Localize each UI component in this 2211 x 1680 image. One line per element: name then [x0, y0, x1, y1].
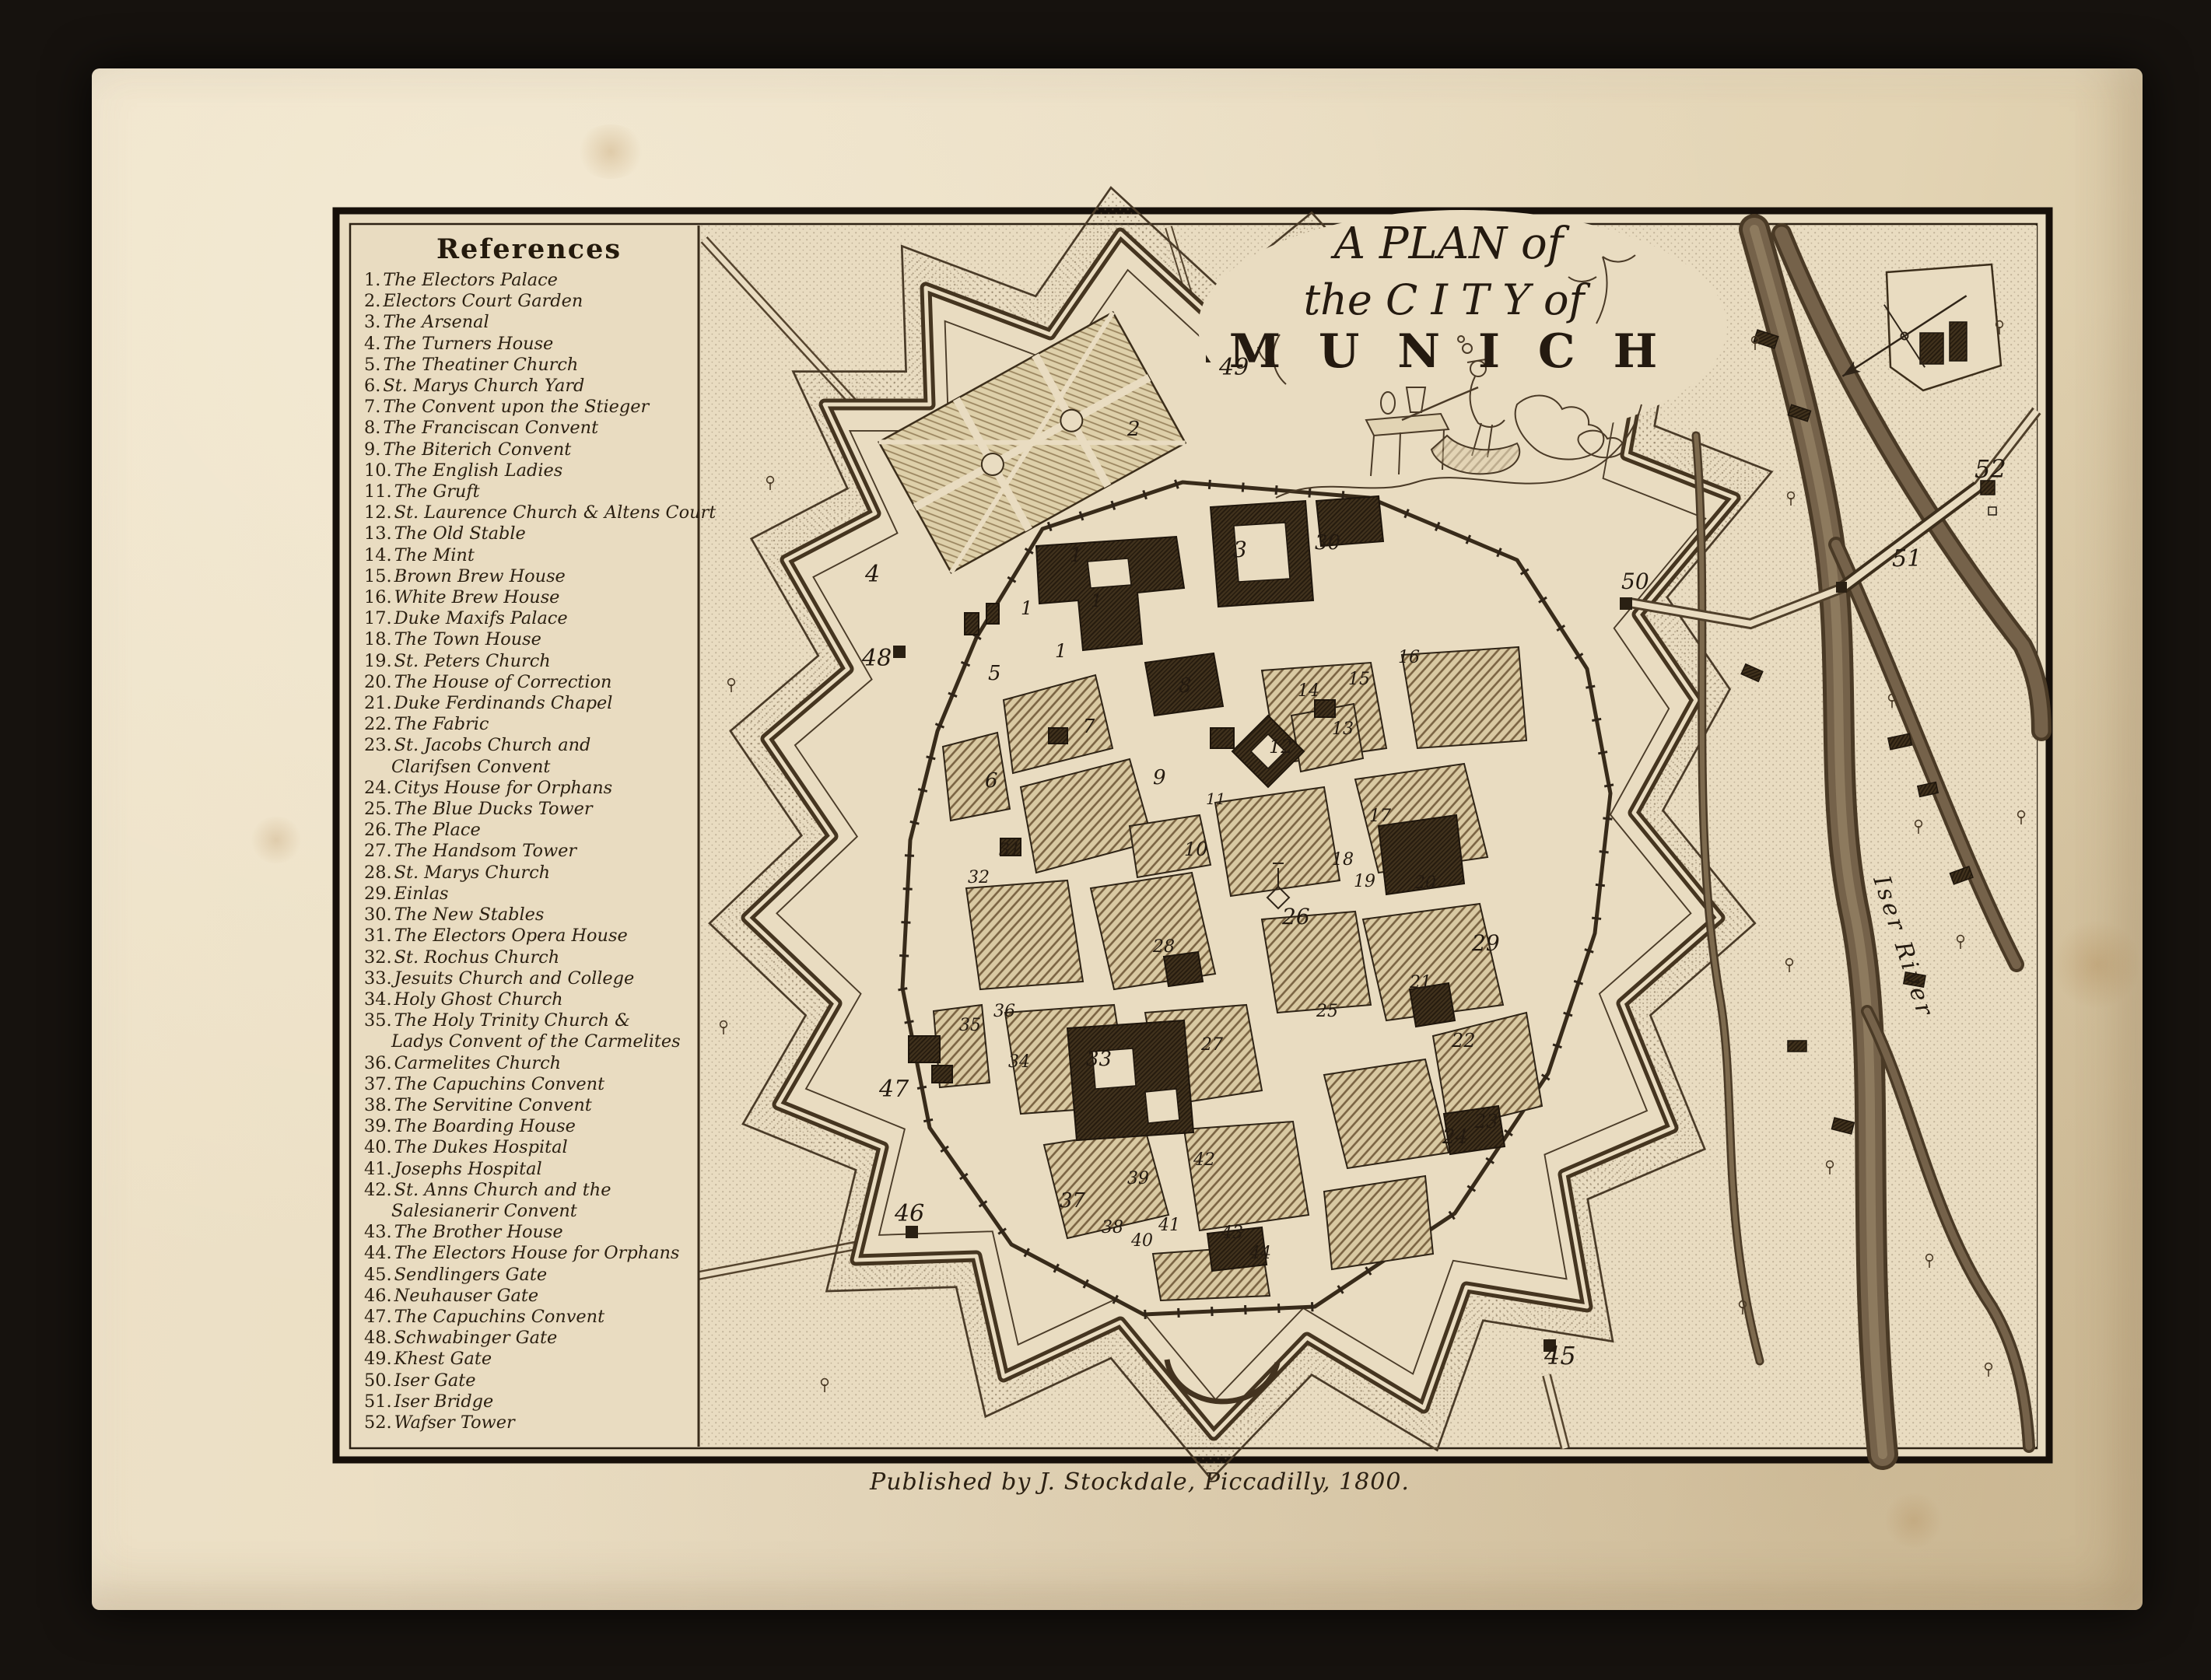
map-label: 39: [1127, 1169, 1149, 1188]
map-label: 20: [1414, 873, 1436, 893]
map-label: 1: [1055, 640, 1067, 662]
map-label: 29: [1471, 930, 1500, 956]
map-label: 42: [1193, 1150, 1215, 1170]
map-label: 52: [1974, 454, 2006, 484]
map-label: 16: [1398, 648, 1420, 667]
reference-item: 25.The Blue Ducks Tower: [364, 799, 694, 820]
walled-enclosure: [1887, 264, 2001, 390]
reference-item: 45.Sendlingers Gate: [364, 1265, 694, 1286]
map-label: 43: [1221, 1223, 1243, 1243]
map-label: 18: [1332, 850, 1354, 870]
map-label: 28: [1152, 937, 1175, 957]
reference-item: 22.The Fabric: [364, 714, 694, 735]
reference-item: 5.The Theatiner Church: [364, 355, 694, 376]
map-label: 50: [1621, 569, 1649, 594]
title-line-2: the C I T Y of: [1303, 275, 1590, 324]
map-label: 1: [1021, 597, 1032, 619]
reference-item: Salesianerir Convent: [364, 1201, 694, 1222]
map-label: 12: [1269, 736, 1293, 758]
map-label: 3: [1233, 537, 1247, 562]
map-label: 46: [894, 1200, 924, 1227]
map-label: 19: [1354, 872, 1375, 891]
reference-item: 43.The Brother House: [364, 1222, 694, 1243]
map-label: 48: [861, 645, 892, 672]
reference-item: 41.Josephs Hospital: [364, 1159, 694, 1180]
reference-item: 12.St. Laurence Church & Altens Court: [364, 502, 694, 523]
map-label: 27: [1200, 1035, 1223, 1055]
reference-item: 4.The Turners House: [364, 334, 694, 355]
reference-item: 36.Carmelites Church: [364, 1053, 694, 1074]
reference-item: 16.White Brew House: [364, 587, 694, 608]
reference-item: 28.St. Marys Church: [364, 863, 694, 884]
map-label: 1: [1070, 544, 1083, 567]
reference-item: 19.St. Peters Church: [364, 651, 694, 672]
reference-item: 6.St. Marys Church Yard: [364, 376, 694, 397]
reference-item: 47.The Capuchins Convent: [364, 1307, 694, 1328]
references-list: 1.The Electors Palace2.Electors Court Ga…: [364, 270, 694, 1433]
map-label: 13: [1332, 719, 1354, 739]
map-label: 14: [1298, 681, 1319, 701]
map-label: 32: [968, 868, 990, 887]
reference-item: 34.Holy Ghost Church: [364, 989, 694, 1010]
map-label: 51: [1892, 545, 1922, 572]
map-label: 38: [1102, 1218, 1123, 1237]
title-line-1: A PLAN of: [1330, 219, 1571, 269]
reference-item: 24.Citys House for Orphans: [364, 778, 694, 799]
reference-item: 14.The Mint: [364, 545, 694, 566]
reference-item: 37.The Capuchins Convent: [364, 1074, 694, 1095]
reference-item: 23.St. Jacobs Church and: [364, 735, 694, 756]
map-label: 44: [1249, 1244, 1271, 1263]
title-line-3: M U N I C H: [1229, 324, 1669, 379]
map-label: 8: [1179, 674, 1192, 698]
reference-item: 26.The Place: [364, 820, 694, 841]
map-label: 5: [988, 662, 1001, 685]
reference-item: 46.Neuhauser Gate: [364, 1286, 694, 1307]
reference-item: 17.Duke Maxifs Palace: [364, 608, 694, 629]
map-label: 21: [1409, 973, 1431, 992]
references-heading: References: [364, 233, 694, 265]
reference-item: 15.Brown Brew House: [364, 566, 694, 587]
map-label: 2: [1127, 418, 1141, 441]
map-label: 31: [999, 841, 1021, 860]
reference-item: 13.The Old Stable: [364, 523, 694, 544]
map-engraving: A PLAN of the C I T Y of M U N I C H 492…: [0, 0, 2211, 1680]
publisher-imprint: Published by J. Stockdale, Piccadilly, 1…: [844, 1468, 1435, 1496]
map-label: 40: [1130, 1231, 1153, 1251]
map-label: 35: [959, 1016, 981, 1035]
map-label: 9: [1153, 766, 1166, 789]
st-marys-church-block: [1164, 952, 1203, 986]
reference-item: 21.Duke Ferdinands Chapel: [364, 693, 694, 714]
reference-item: 32.St. Rochus Church: [364, 947, 694, 968]
capuchins-convent-47: [909, 1036, 940, 1062]
map-label: 4: [864, 561, 880, 588]
reference-item: 48.Schwabinger Gate: [364, 1328, 694, 1349]
map-label: 6: [985, 769, 998, 793]
map-label: 45: [1543, 1341, 1576, 1370]
reference-item: 20.The House of Correction: [364, 672, 694, 693]
map-label: 23: [1473, 1111, 1498, 1132]
map-label: 1: [1091, 590, 1102, 611]
map-label: 7: [1083, 716, 1095, 737]
reference-item: 2.Electors Court Garden: [364, 291, 694, 312]
reference-item: 9.The Biterich Convent: [364, 439, 694, 460]
reference-item: 3.The Arsenal: [364, 312, 694, 333]
reference-item: 7.The Convent upon the Stieger: [364, 397, 694, 418]
reference-item: 8.The Franciscan Convent: [364, 418, 694, 439]
map-area: A PLAN of the C I T Y of M U N I C H 492…: [699, 187, 2041, 1479]
map-label: 36: [993, 1002, 1015, 1021]
reference-item: Ladys Convent of the Carmelites: [364, 1031, 694, 1052]
references-panel: References 1.The Electors Palace2.Electo…: [350, 224, 697, 1448]
reference-item: 42.St. Anns Church and the: [364, 1180, 694, 1201]
reference-item: 27.The Handsom Tower: [364, 841, 694, 862]
map-label: 24: [1442, 1125, 1468, 1149]
reference-item: 40.The Dukes Hospital: [364, 1137, 694, 1158]
reference-item: 1.The Electors Palace: [364, 270, 694, 291]
reference-item: 38.The Servitine Convent: [364, 1095, 694, 1116]
reference-item: 52.Wafser Tower: [364, 1412, 694, 1433]
map-label: 15: [1348, 670, 1370, 689]
reference-item: 49.Khest Gate: [364, 1349, 694, 1370]
map-label: 47: [878, 1076, 909, 1103]
map-label: 41: [1158, 1216, 1180, 1235]
reference-item: 31.The Electors Opera House: [364, 926, 694, 947]
map-label: 17: [1369, 807, 1391, 826]
reference-item: 50.Iser Gate: [364, 1370, 694, 1391]
scanned-map-page: { "artwork": { "title": { "line1": "A PL…: [0, 0, 2211, 1680]
map-label: 49: [1218, 354, 1249, 381]
map-label: 10: [1184, 838, 1208, 860]
map-label: 33: [1086, 1048, 1112, 1071]
map-label: 11: [1206, 789, 1225, 808]
map-label: 34: [1008, 1052, 1030, 1072]
reference-item: 51.Iser Bridge: [364, 1391, 694, 1412]
map-label: 30: [1315, 531, 1340, 555]
reference-item: Clarifsen Convent: [364, 757, 694, 778]
map-label: 37: [1060, 1189, 1086, 1213]
reference-item: 33.Jesuits Church and College: [364, 968, 694, 989]
reference-item: 11.The Gruft: [364, 481, 694, 502]
reference-item: 10.The English Ladies: [364, 460, 694, 481]
map-label: 25: [1316, 1002, 1338, 1021]
reference-item: 30.The New Stables: [364, 905, 694, 926]
reference-item: 35.The Holy Trinity Church &: [364, 1010, 694, 1031]
reference-item: 18.The Town House: [364, 629, 694, 650]
reference-item: 29.Einlas: [364, 884, 694, 905]
map-label: 26: [1281, 904, 1310, 929]
reference-item: 44.The Electors House for Orphans: [364, 1243, 694, 1264]
reference-item: 39.The Boarding House: [364, 1116, 694, 1137]
map-label: 22: [1451, 1030, 1476, 1052]
